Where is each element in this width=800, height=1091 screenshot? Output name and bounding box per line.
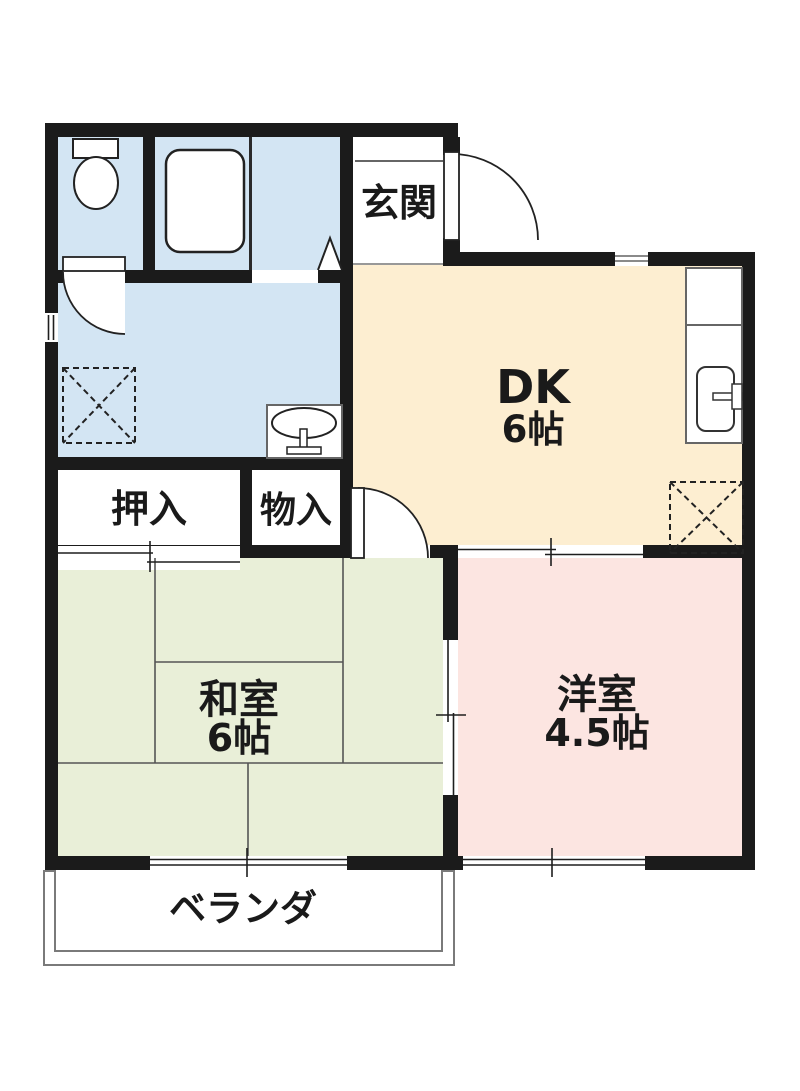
dk-size-label: 6帖 (443, 411, 623, 450)
room-kitchen-hall (58, 283, 340, 457)
window-kitchen-left (45, 313, 58, 342)
window-washitsu-south (150, 856, 347, 870)
wall-genkan-stub-upper (443, 137, 460, 155)
vent-dk-top (615, 252, 648, 266)
wall-right (742, 252, 755, 870)
fusuma-oshiire (58, 546, 240, 570)
slider-washitsu-youshitsu (443, 640, 458, 795)
wall-dk-top (443, 252, 755, 266)
opening-dk-door (352, 545, 430, 558)
genkan-label: 玄関 (353, 184, 445, 224)
wall-kitchen-bottom (45, 457, 352, 470)
washitsu-size-label: 6帖 (149, 719, 329, 759)
youshitsu-label: 洋室 (507, 674, 687, 716)
oshiire-label: 押入 (58, 490, 240, 530)
floor-plan: 玄関 DK 6帖 押入 物入 和室 6帖 洋室 4.5帖 ベランダ (0, 0, 800, 1091)
wall-bath-divider (249, 137, 252, 270)
wall-toilet-right (143, 137, 155, 272)
slider-dk-youshitsu (458, 545, 643, 558)
opening-toilet-door (63, 270, 125, 283)
opening-washroom (252, 270, 318, 283)
room-bathroom (155, 137, 249, 270)
room-toilet (58, 137, 143, 270)
wall-left (45, 123, 58, 870)
youshitsu-size-label: 4.5帖 (507, 714, 687, 754)
monoire-label: 物入 (250, 492, 342, 530)
veranda-label: ベランダ (143, 890, 343, 929)
genkan-entry-door (444, 152, 538, 240)
room-washroom (252, 137, 340, 270)
wall-genkan-stub-lower (443, 238, 460, 254)
dk-label: DK (443, 363, 623, 411)
washitsu-label: 和室 (149, 679, 329, 721)
wall-top (45, 123, 458, 137)
window-youshitsu-south (463, 856, 645, 870)
